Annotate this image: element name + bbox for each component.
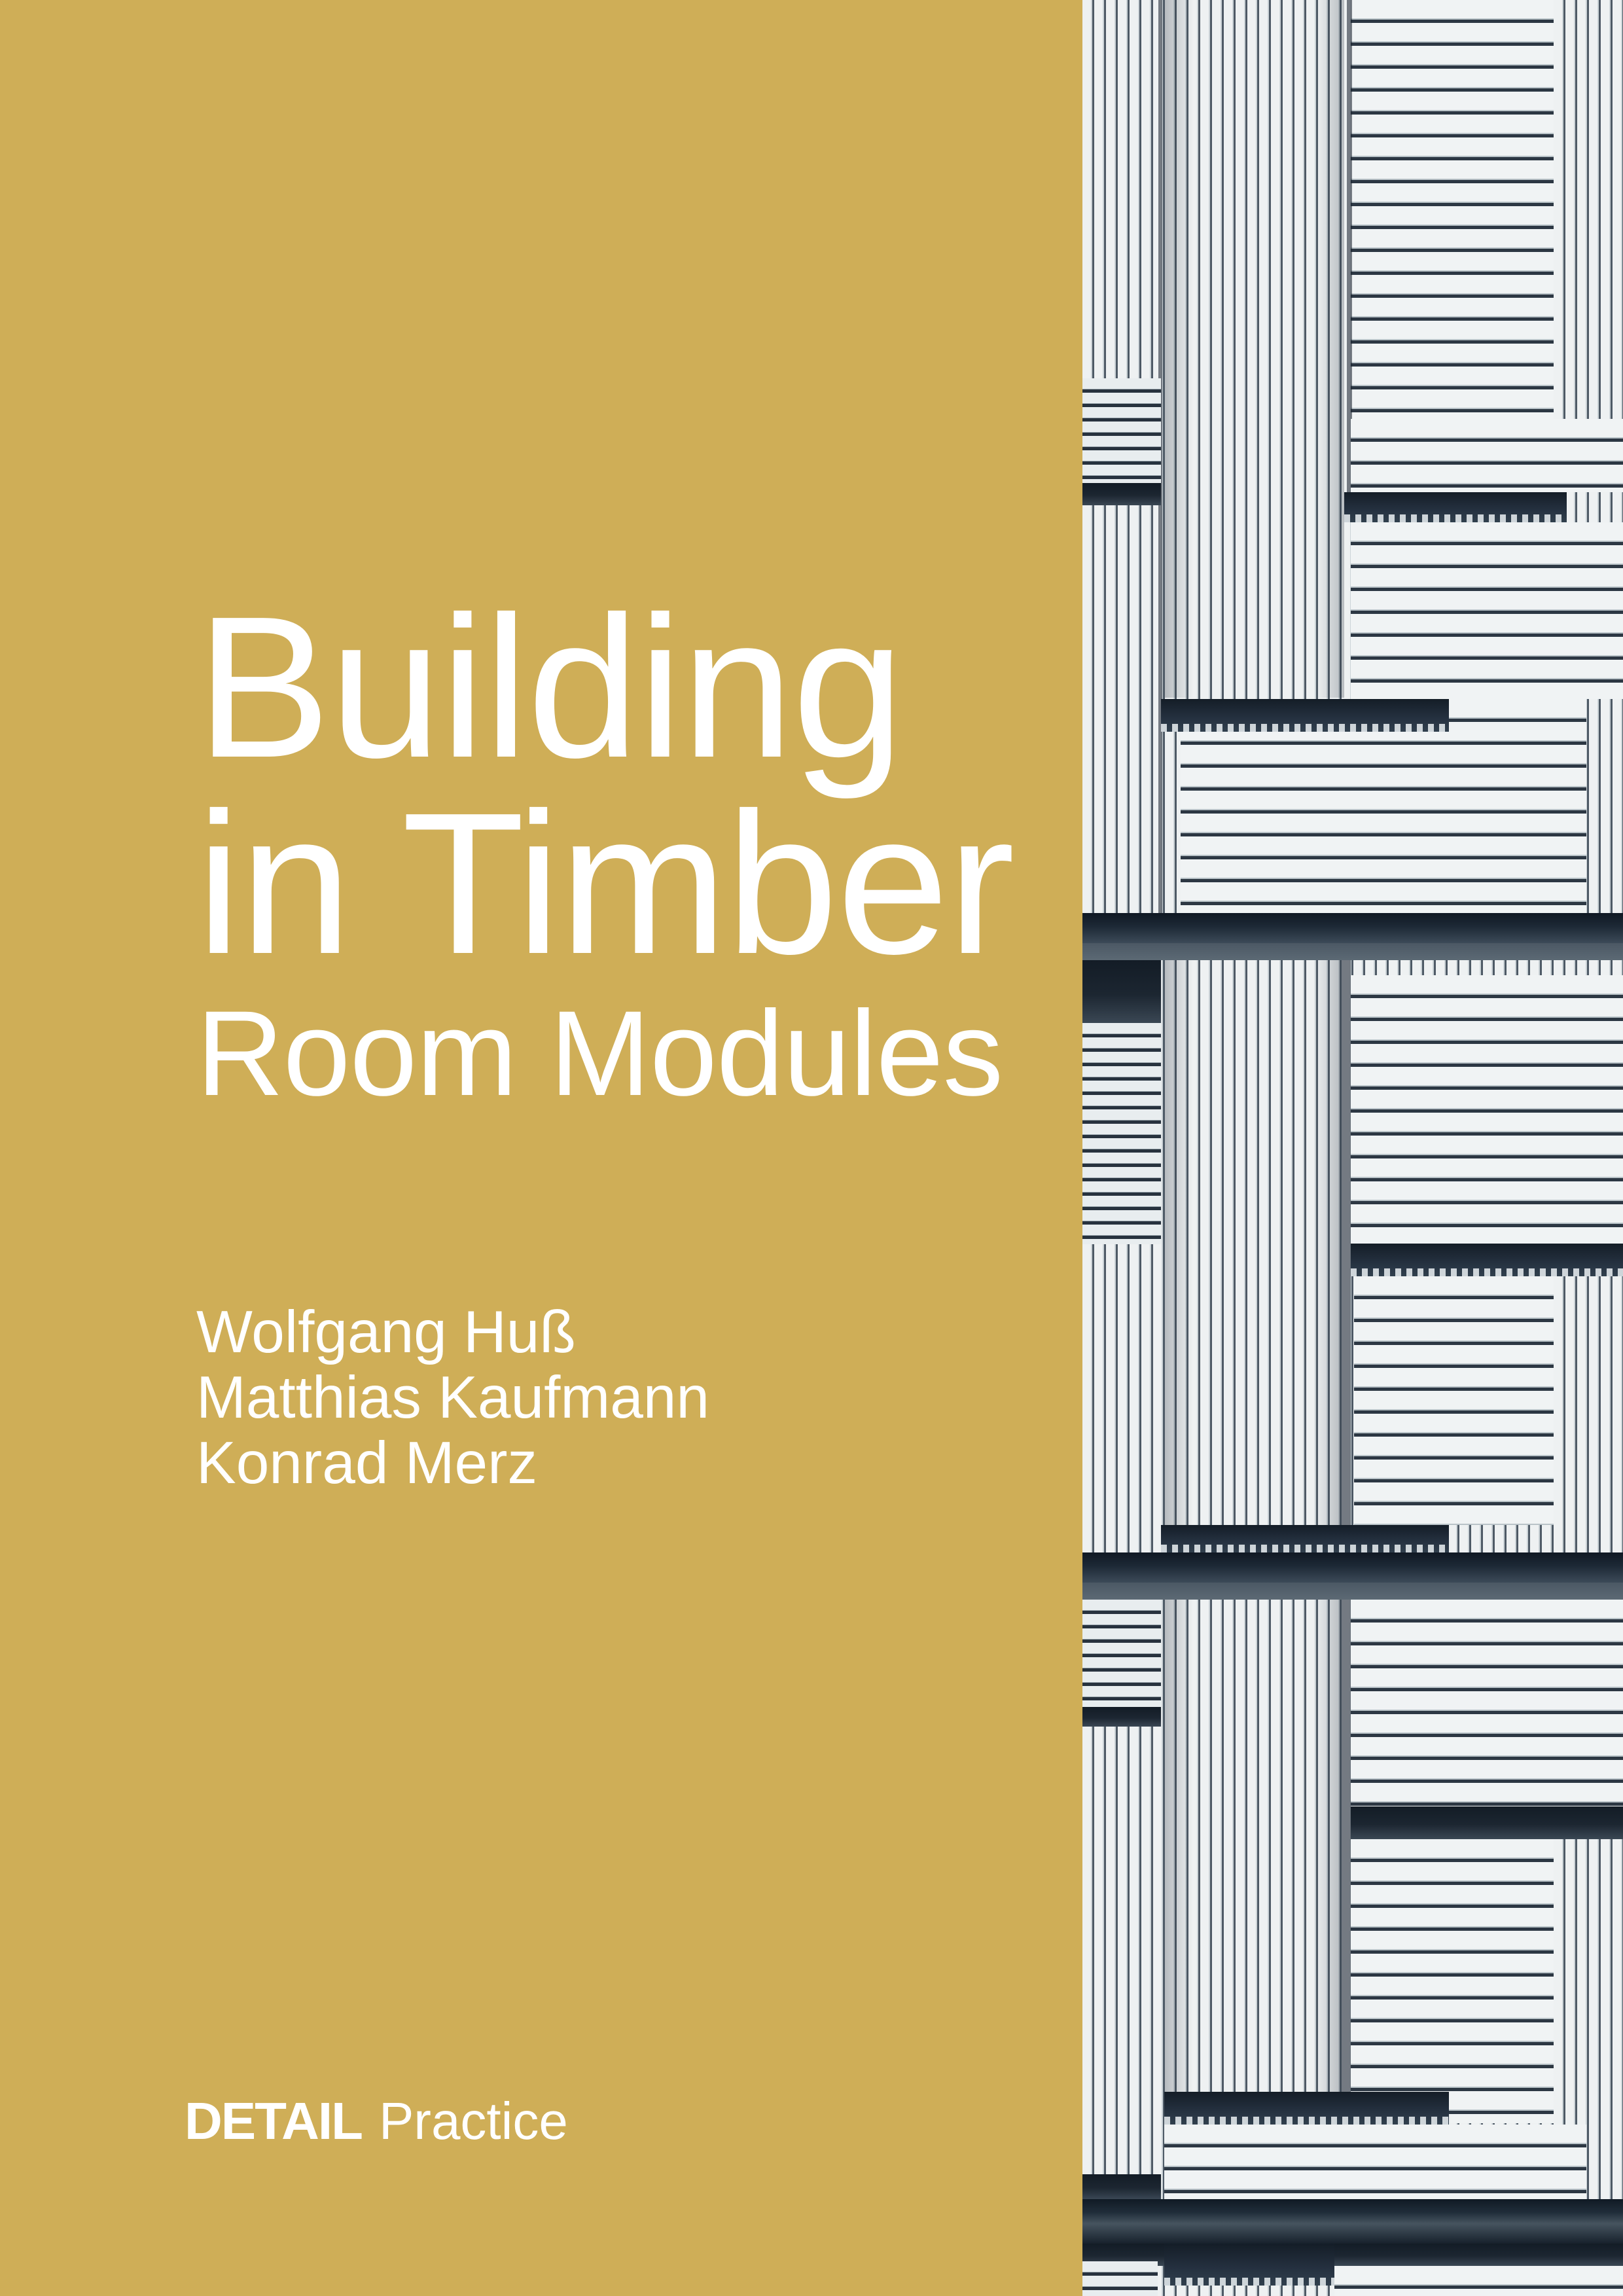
cover-photo-timber-facade — [1082, 0, 1623, 2296]
author-name: Konrad Merz — [196, 1431, 709, 1496]
facade-panel-d — [1082, 1707, 1161, 1727]
facade-panel-ds — [1344, 492, 1567, 522]
book-title: Building in Timber — [196, 589, 1014, 982]
facade-panel-d — [1082, 483, 1161, 505]
series-label: Practice — [379, 2092, 568, 2150]
facade-panel-p — [1351, 1600, 1623, 1806]
facade-panel-p — [1351, 1839, 1554, 2123]
facade-panel-j — [1342, 1600, 1351, 2123]
facade-panel-vg — [1165, 960, 1342, 1525]
facade-panel-ds — [1161, 699, 1449, 732]
facade-panel-ds — [1351, 1244, 1623, 1276]
facade-panel-fb — [1082, 1552, 1623, 1583]
author-name: Matthias Kaufmann — [196, 1365, 709, 1431]
facade-panel-d — [1351, 1806, 1623, 1839]
facade-panel-s — [1082, 943, 1623, 960]
facade-panel-fb2 — [1082, 2199, 1623, 2244]
facade-panel-p — [1334, 2266, 1623, 2296]
facade-panel-s — [1082, 1583, 1623, 1600]
detail-logo: DETAIL — [185, 2092, 362, 2150]
facade-panel-p — [1351, 975, 1623, 1244]
facade-panel-h — [1082, 1600, 1161, 1717]
facade-panel-p — [1351, 522, 1623, 699]
book-subtitle: Room Modules — [196, 994, 1003, 1115]
facade-panel-h — [1082, 1023, 1161, 1244]
facade-panel-p — [1164, 2125, 1586, 2199]
facade-panel-p — [1351, 419, 1623, 492]
facade-panel-h — [1082, 2261, 1158, 2296]
book-title-line1: Building — [196, 589, 1014, 785]
facade-panel-ds — [1164, 2092, 1449, 2125]
facade-panel-d — [1082, 2244, 1623, 2266]
facade-panel-vg — [1165, 1600, 1342, 2092]
facade-panel-vg — [1165, 0, 1344, 698]
facade-panel-fb — [1082, 913, 1623, 943]
facade-panel-h — [1082, 378, 1161, 495]
book-title-line2: in Timber — [196, 785, 1014, 982]
facade-panel-ds — [1161, 1525, 1449, 1552]
facade-panel-d — [1082, 960, 1161, 1023]
facade-panel-d — [1082, 2174, 1161, 2199]
facade-panel-ds — [1164, 2244, 1334, 2286]
book-cover: Building in Timber Room Modules Wolfgang… — [0, 0, 1623, 2296]
facade-panel-j — [1342, 960, 1351, 1525]
author-name: Wolfgang Huß — [196, 1300, 709, 1365]
facade-panel-p — [1354, 1276, 1554, 1525]
publisher-brand: DETAILPractice — [185, 2095, 568, 2147]
facade-panel-p — [1351, 0, 1554, 419]
author-list: Wolfgang Huß Matthias Kaufmann Konrad Me… — [196, 1300, 709, 1496]
